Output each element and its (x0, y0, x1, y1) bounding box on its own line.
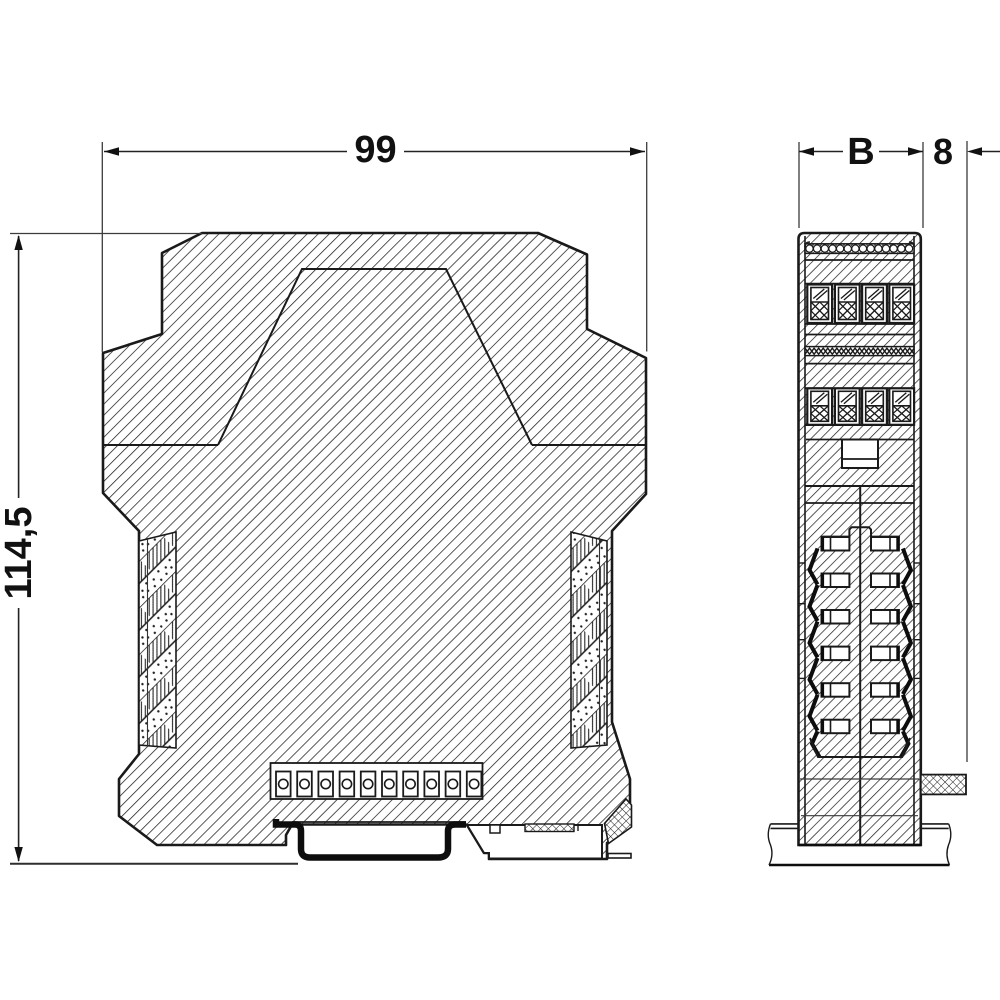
svg-text:8: 8 (933, 131, 953, 172)
svg-text:99: 99 (354, 129, 396, 171)
svg-text:B: B (847, 131, 874, 173)
svg-text:114,5: 114,5 (0, 507, 40, 600)
